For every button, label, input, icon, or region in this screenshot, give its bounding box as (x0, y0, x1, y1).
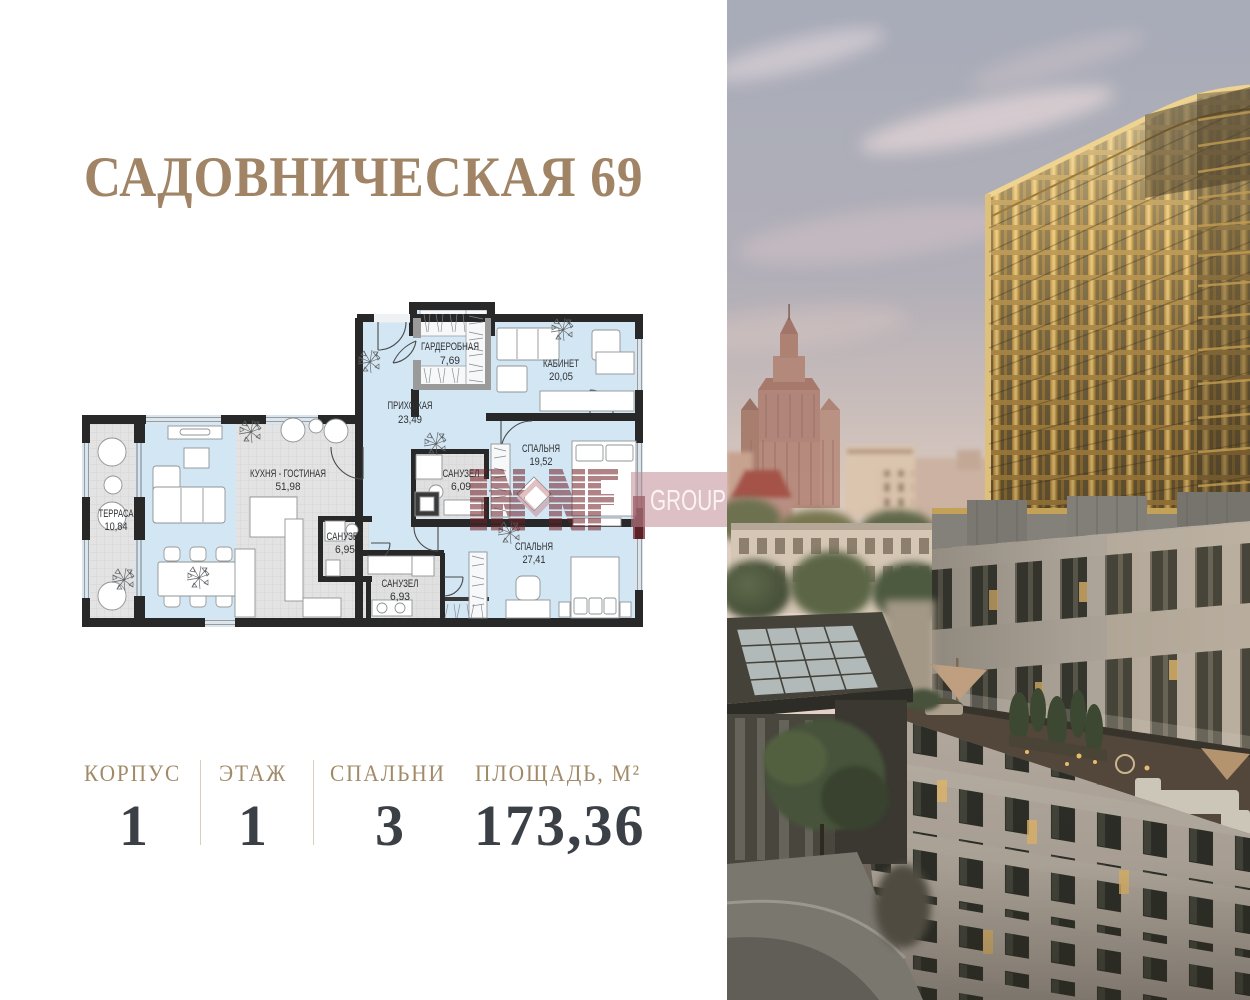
svg-text:GROUP: GROUP (650, 485, 726, 517)
